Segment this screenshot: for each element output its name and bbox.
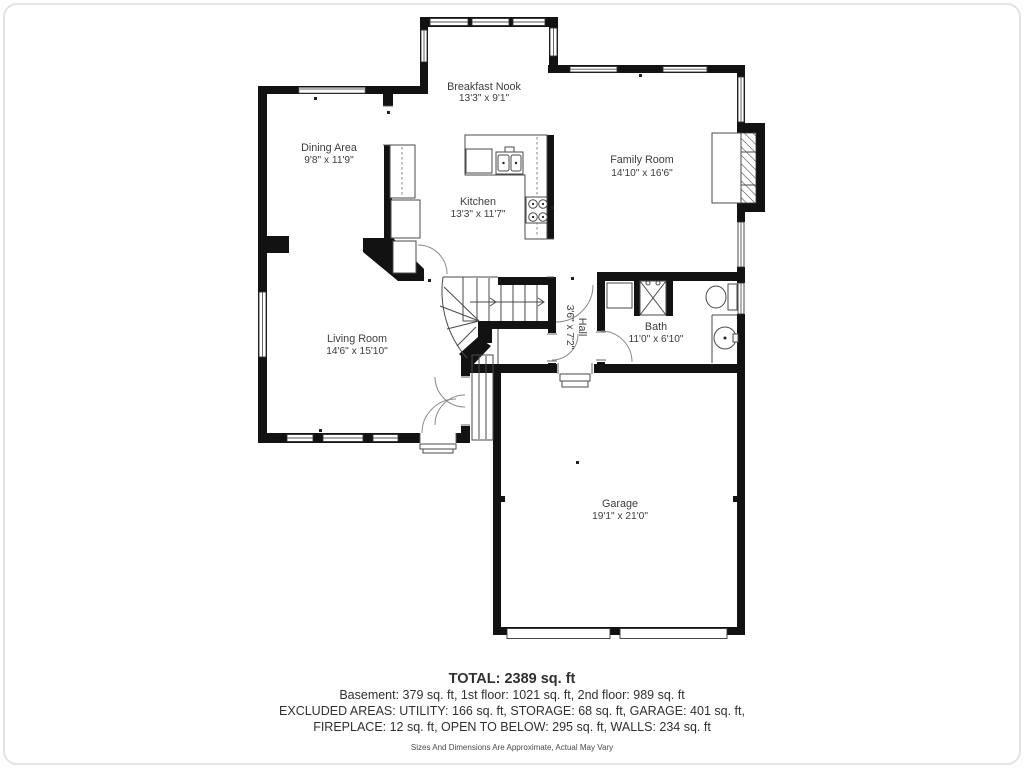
svg-text:Living Room: Living Room xyxy=(327,333,387,345)
svg-text:Family Room: Family Room xyxy=(610,154,674,166)
room-label-dining-area: Dining Area 9'8" x 11'9" xyxy=(301,142,357,166)
svg-text:14'10" x 16'6": 14'10" x 16'6" xyxy=(611,168,673,179)
svg-text:3'6" x 7'2": 3'6" x 7'2" xyxy=(564,305,575,350)
svg-text:13'3" x 11'7": 13'3" x 11'7" xyxy=(450,209,505,220)
room-label-breakfast-nook: Breakfast Nook 13'3" x 9'1" xyxy=(447,81,521,104)
svg-text:Garage: Garage xyxy=(602,498,638,510)
nook-window-left xyxy=(421,30,427,62)
svg-text:14'6" x 15'10": 14'6" x 15'10" xyxy=(326,346,388,357)
stair-direction-arrow xyxy=(470,298,544,306)
room-label-kitchen: Kitchen 13'3" x 11'7" xyxy=(450,196,505,220)
svg-text:Breakfast Nook: Breakfast Nook xyxy=(447,81,521,93)
room-label-bath: Bath 11'0" x 6'10" xyxy=(628,321,683,345)
dining-top-window xyxy=(299,88,365,94)
disclaimer-text: Sizes And Dimensions Are Approximate, Ac… xyxy=(0,743,1024,752)
wall-dots xyxy=(314,74,642,464)
svg-text:11'0" x 6'10": 11'0" x 6'10" xyxy=(628,334,683,345)
floor-plan: Breakfast Nook 13'3" x 9'1" Dining Area … xyxy=(0,0,1024,768)
pantry-cabinet xyxy=(390,145,415,198)
living-room-window-left xyxy=(259,292,266,357)
bath-sink xyxy=(712,315,738,363)
bath-window xyxy=(738,283,744,314)
svg-text:9'8" x 11'9": 9'8" x 11'9" xyxy=(304,155,354,166)
nook-window-top xyxy=(430,19,545,26)
room-label-family-room: Family Room 14'10" x 16'6" xyxy=(610,154,674,179)
svg-text:19'1" x 21'0": 19'1" x 21'0" xyxy=(592,511,648,522)
toilet xyxy=(706,284,737,310)
room-label-living-room: Living Room 14'6" x 15'10" xyxy=(326,333,388,357)
room-label-garage: Garage 19'1" x 21'0" xyxy=(592,498,648,522)
svg-text:Kitchen: Kitchen xyxy=(460,196,496,208)
bath-vanity-square xyxy=(607,283,632,308)
svg-text:Hall: Hall xyxy=(576,318,588,337)
svg-text:Dining Area: Dining Area xyxy=(301,142,357,154)
stairs xyxy=(440,277,544,364)
shower xyxy=(640,281,666,315)
stove-cooktop xyxy=(526,197,547,223)
bath-door xyxy=(596,331,632,362)
svg-text:Bath: Bath xyxy=(645,321,667,333)
excluded-areas-text2: FIREPLACE: 12 sq. ft, OPEN TO BELOW: 295… xyxy=(0,720,1024,734)
garage-entry-door xyxy=(557,363,594,387)
living-room-windows-bottom xyxy=(287,435,398,442)
nook-window-right xyxy=(550,28,557,56)
walls xyxy=(258,17,765,635)
floor-areas-text: Basement: 379 sq. ft, 1st floor: 1021 sq… xyxy=(0,688,1024,702)
total-area-text: TOTAL: 2389 sq. ft xyxy=(0,671,1024,687)
excluded-areas-text: EXCLUDED AREAS: UTILITY: 166 sq. ft, STO… xyxy=(0,704,1024,718)
refrigerator xyxy=(391,200,420,238)
front-door-bottom xyxy=(420,399,456,453)
fireplace xyxy=(712,133,756,203)
front-entry-side-door xyxy=(435,376,471,426)
svg-text:13'3" x 9'1": 13'3" x 9'1" xyxy=(459,93,510,104)
